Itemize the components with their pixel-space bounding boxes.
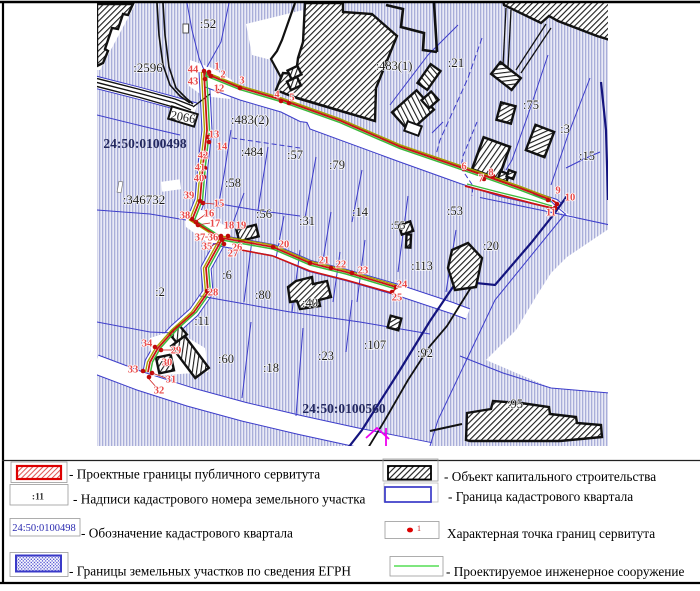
svg-text:19: 19 <box>236 221 247 232</box>
svg-text:31: 31 <box>166 375 177 386</box>
svg-text::113: :113 <box>411 259 433 273</box>
svg-text::14: :14 <box>352 205 369 219</box>
svg-text::20: :20 <box>483 239 499 253</box>
svg-text::6: :6 <box>222 268 232 282</box>
svg-text::55: :55 <box>391 220 406 232</box>
svg-text::56: :56 <box>256 207 272 221</box>
svg-text::31: :31 <box>299 214 315 228</box>
svg-text:24:50:0100498: 24:50:0100498 <box>103 136 186 151</box>
svg-text:7: 7 <box>478 174 483 185</box>
svg-text:41: 41 <box>195 163 206 174</box>
svg-text::3: :3 <box>560 122 570 136</box>
svg-text:39: 39 <box>184 191 195 202</box>
svg-text::57: :57 <box>287 148 303 162</box>
svg-text:38: 38 <box>180 211 191 222</box>
svg-text::18: :18 <box>263 361 279 375</box>
svg-text::21: :21 <box>448 55 465 70</box>
svg-text:44: 44 <box>188 65 199 76</box>
svg-text:- Границы земельных участков п: - Границы земельных участков по сведения… <box>69 564 351 579</box>
svg-text::52: :52 <box>200 16 217 31</box>
svg-text::60: :60 <box>218 352 234 366</box>
svg-text:14: 14 <box>217 142 228 153</box>
svg-text::11: :11 <box>32 493 44 503</box>
svg-text:1: 1 <box>417 524 421 533</box>
svg-text:33: 33 <box>128 365 139 376</box>
svg-text:25: 25 <box>392 293 403 304</box>
svg-text:3: 3 <box>239 76 244 87</box>
svg-text::40: :40 <box>302 296 318 310</box>
svg-text:13: 13 <box>209 130 220 141</box>
svg-text::107: :107 <box>364 338 386 352</box>
svg-text::15: :15 <box>579 149 595 163</box>
svg-text:22: 22 <box>336 260 347 271</box>
svg-text::11: :11 <box>194 314 210 328</box>
svg-text:21: 21 <box>319 256 330 267</box>
svg-text:12: 12 <box>214 84 225 95</box>
svg-text::346732: :346732 <box>123 192 166 207</box>
svg-text:1: 1 <box>214 62 219 73</box>
svg-text:9: 9 <box>555 186 560 197</box>
svg-text:- Объект капитального строител: - Объект капитального строительства <box>444 469 656 484</box>
svg-text::92: :92 <box>417 346 433 360</box>
svg-text:24:50:0100560: 24:50:0100560 <box>302 401 385 416</box>
svg-text:24:50:0100498: 24:50:0100498 <box>12 523 76 534</box>
svg-text:15: 15 <box>214 199 225 210</box>
svg-text:43: 43 <box>188 77 199 88</box>
svg-text:- Обозначение кадастрового ква: - Обозначение кадастрового квартала <box>81 526 293 541</box>
svg-text::79: :79 <box>329 158 345 172</box>
svg-text:18: 18 <box>224 221 235 232</box>
svg-text:35: 35 <box>202 242 213 253</box>
svg-text::483(1): :483(1) <box>376 59 413 73</box>
svg-text:27: 27 <box>228 249 239 260</box>
svg-text::58: :58 <box>225 176 241 190</box>
svg-text:- Надписи кадастрового номера: - Надписи кадастрового номера земельного… <box>73 492 365 507</box>
svg-text::2: :2 <box>155 285 165 299</box>
svg-text:30: 30 <box>162 358 173 369</box>
svg-text::2596: :2596 <box>133 60 163 75</box>
svg-text:40: 40 <box>194 174 205 185</box>
svg-text:17: 17 <box>210 219 221 230</box>
svg-text::23: :23 <box>318 349 334 363</box>
svg-text:8: 8 <box>488 168 493 179</box>
svg-text::75: :75 <box>523 98 539 112</box>
svg-text:24: 24 <box>397 280 408 291</box>
svg-text::483(2): :483(2) <box>231 112 269 127</box>
svg-text:32: 32 <box>154 386 165 397</box>
svg-text::484: :484 <box>241 145 264 159</box>
svg-text::53: :53 <box>447 204 463 218</box>
svg-text:4: 4 <box>274 90 280 101</box>
svg-text:2: 2 <box>220 70 225 81</box>
svg-text:Характерная точка границ серви: Характерная точка границ сервитута <box>447 526 655 541</box>
svg-text:34: 34 <box>142 339 153 350</box>
svg-text:11: 11 <box>546 208 556 219</box>
svg-text:10: 10 <box>565 193 576 204</box>
svg-text:29: 29 <box>171 346 182 357</box>
svg-text:28: 28 <box>208 288 219 299</box>
svg-text:- Граница кадастрового квартал: - Граница кадастрового квартала <box>448 489 633 504</box>
svg-text:23: 23 <box>358 266 369 277</box>
svg-text:42: 42 <box>198 151 209 162</box>
svg-text:5: 5 <box>289 93 294 104</box>
svg-text::80: :80 <box>255 288 271 302</box>
svg-text::95: :95 <box>507 397 523 411</box>
svg-text:6: 6 <box>461 162 466 173</box>
svg-text:20: 20 <box>279 240 290 251</box>
svg-text:- Проектные границы публичного: - Проектные границы публичного сервитута <box>69 467 320 482</box>
svg-text:- Проектируемое инженерное соо: - Проектируемое инженерное сооружение <box>446 564 684 579</box>
